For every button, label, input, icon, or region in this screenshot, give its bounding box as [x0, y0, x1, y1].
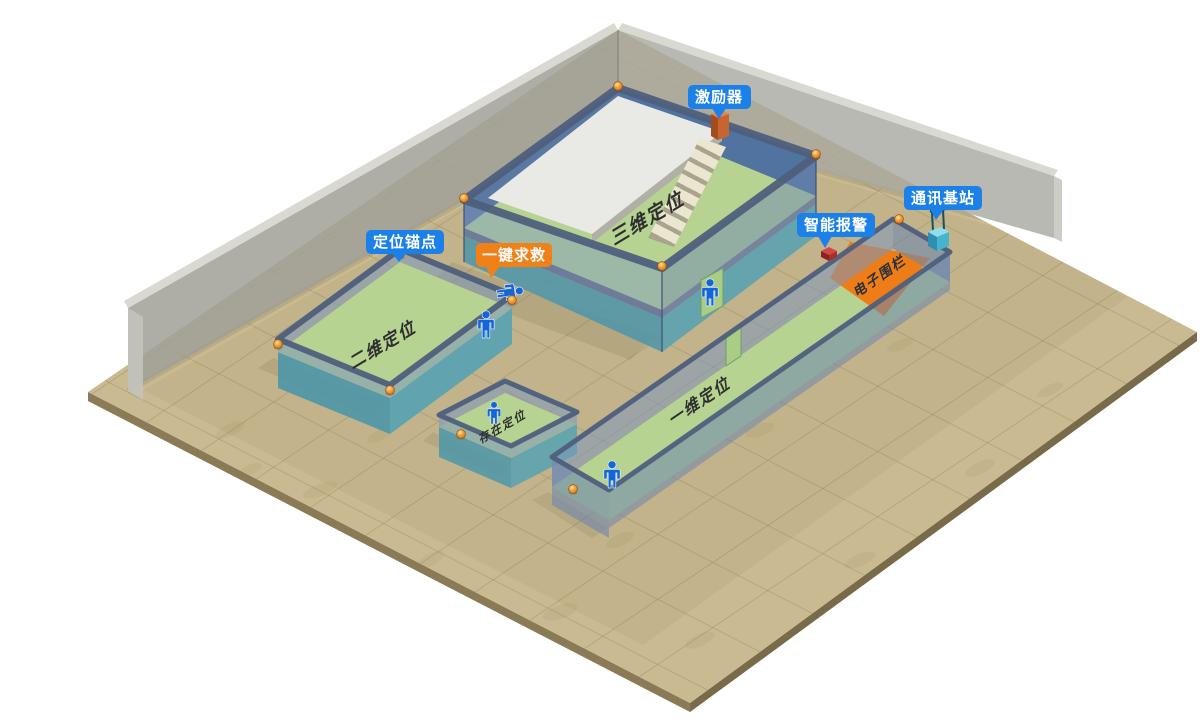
- callout-label: 通讯基站: [911, 189, 975, 207]
- antenna-right: [943, 210, 944, 229]
- anchor-dot: [274, 340, 283, 350]
- anchor-dot: [658, 262, 667, 272]
- callout-label: 激励器: [695, 88, 743, 106]
- anchor-dot: [895, 215, 904, 225]
- anchor-dot: [614, 82, 623, 92]
- anchor-dot: [386, 386, 395, 396]
- back-wall-left-endcap: [128, 308, 143, 400]
- exciter-front: [711, 114, 718, 140]
- callout-label: 定位锚点: [373, 233, 437, 251]
- scene-canvas: 二维定位 存在定位 三维定位: [0, 0, 1200, 723]
- antenna-left: [932, 212, 933, 231]
- back-wall-right-endcap: [1054, 176, 1062, 242]
- anchor-dot: [812, 150, 821, 160]
- anchor-dot: [508, 296, 517, 306]
- anchor-dot: [460, 194, 469, 204]
- positioning-demo-scene: 二维定位 存在定位 三维定位: [0, 0, 1200, 723]
- anchor-dot: [569, 485, 578, 495]
- callout-label: 智能报警: [804, 216, 868, 234]
- callout-label: 一键求救: [482, 246, 546, 264]
- anchor-dot: [457, 430, 466, 440]
